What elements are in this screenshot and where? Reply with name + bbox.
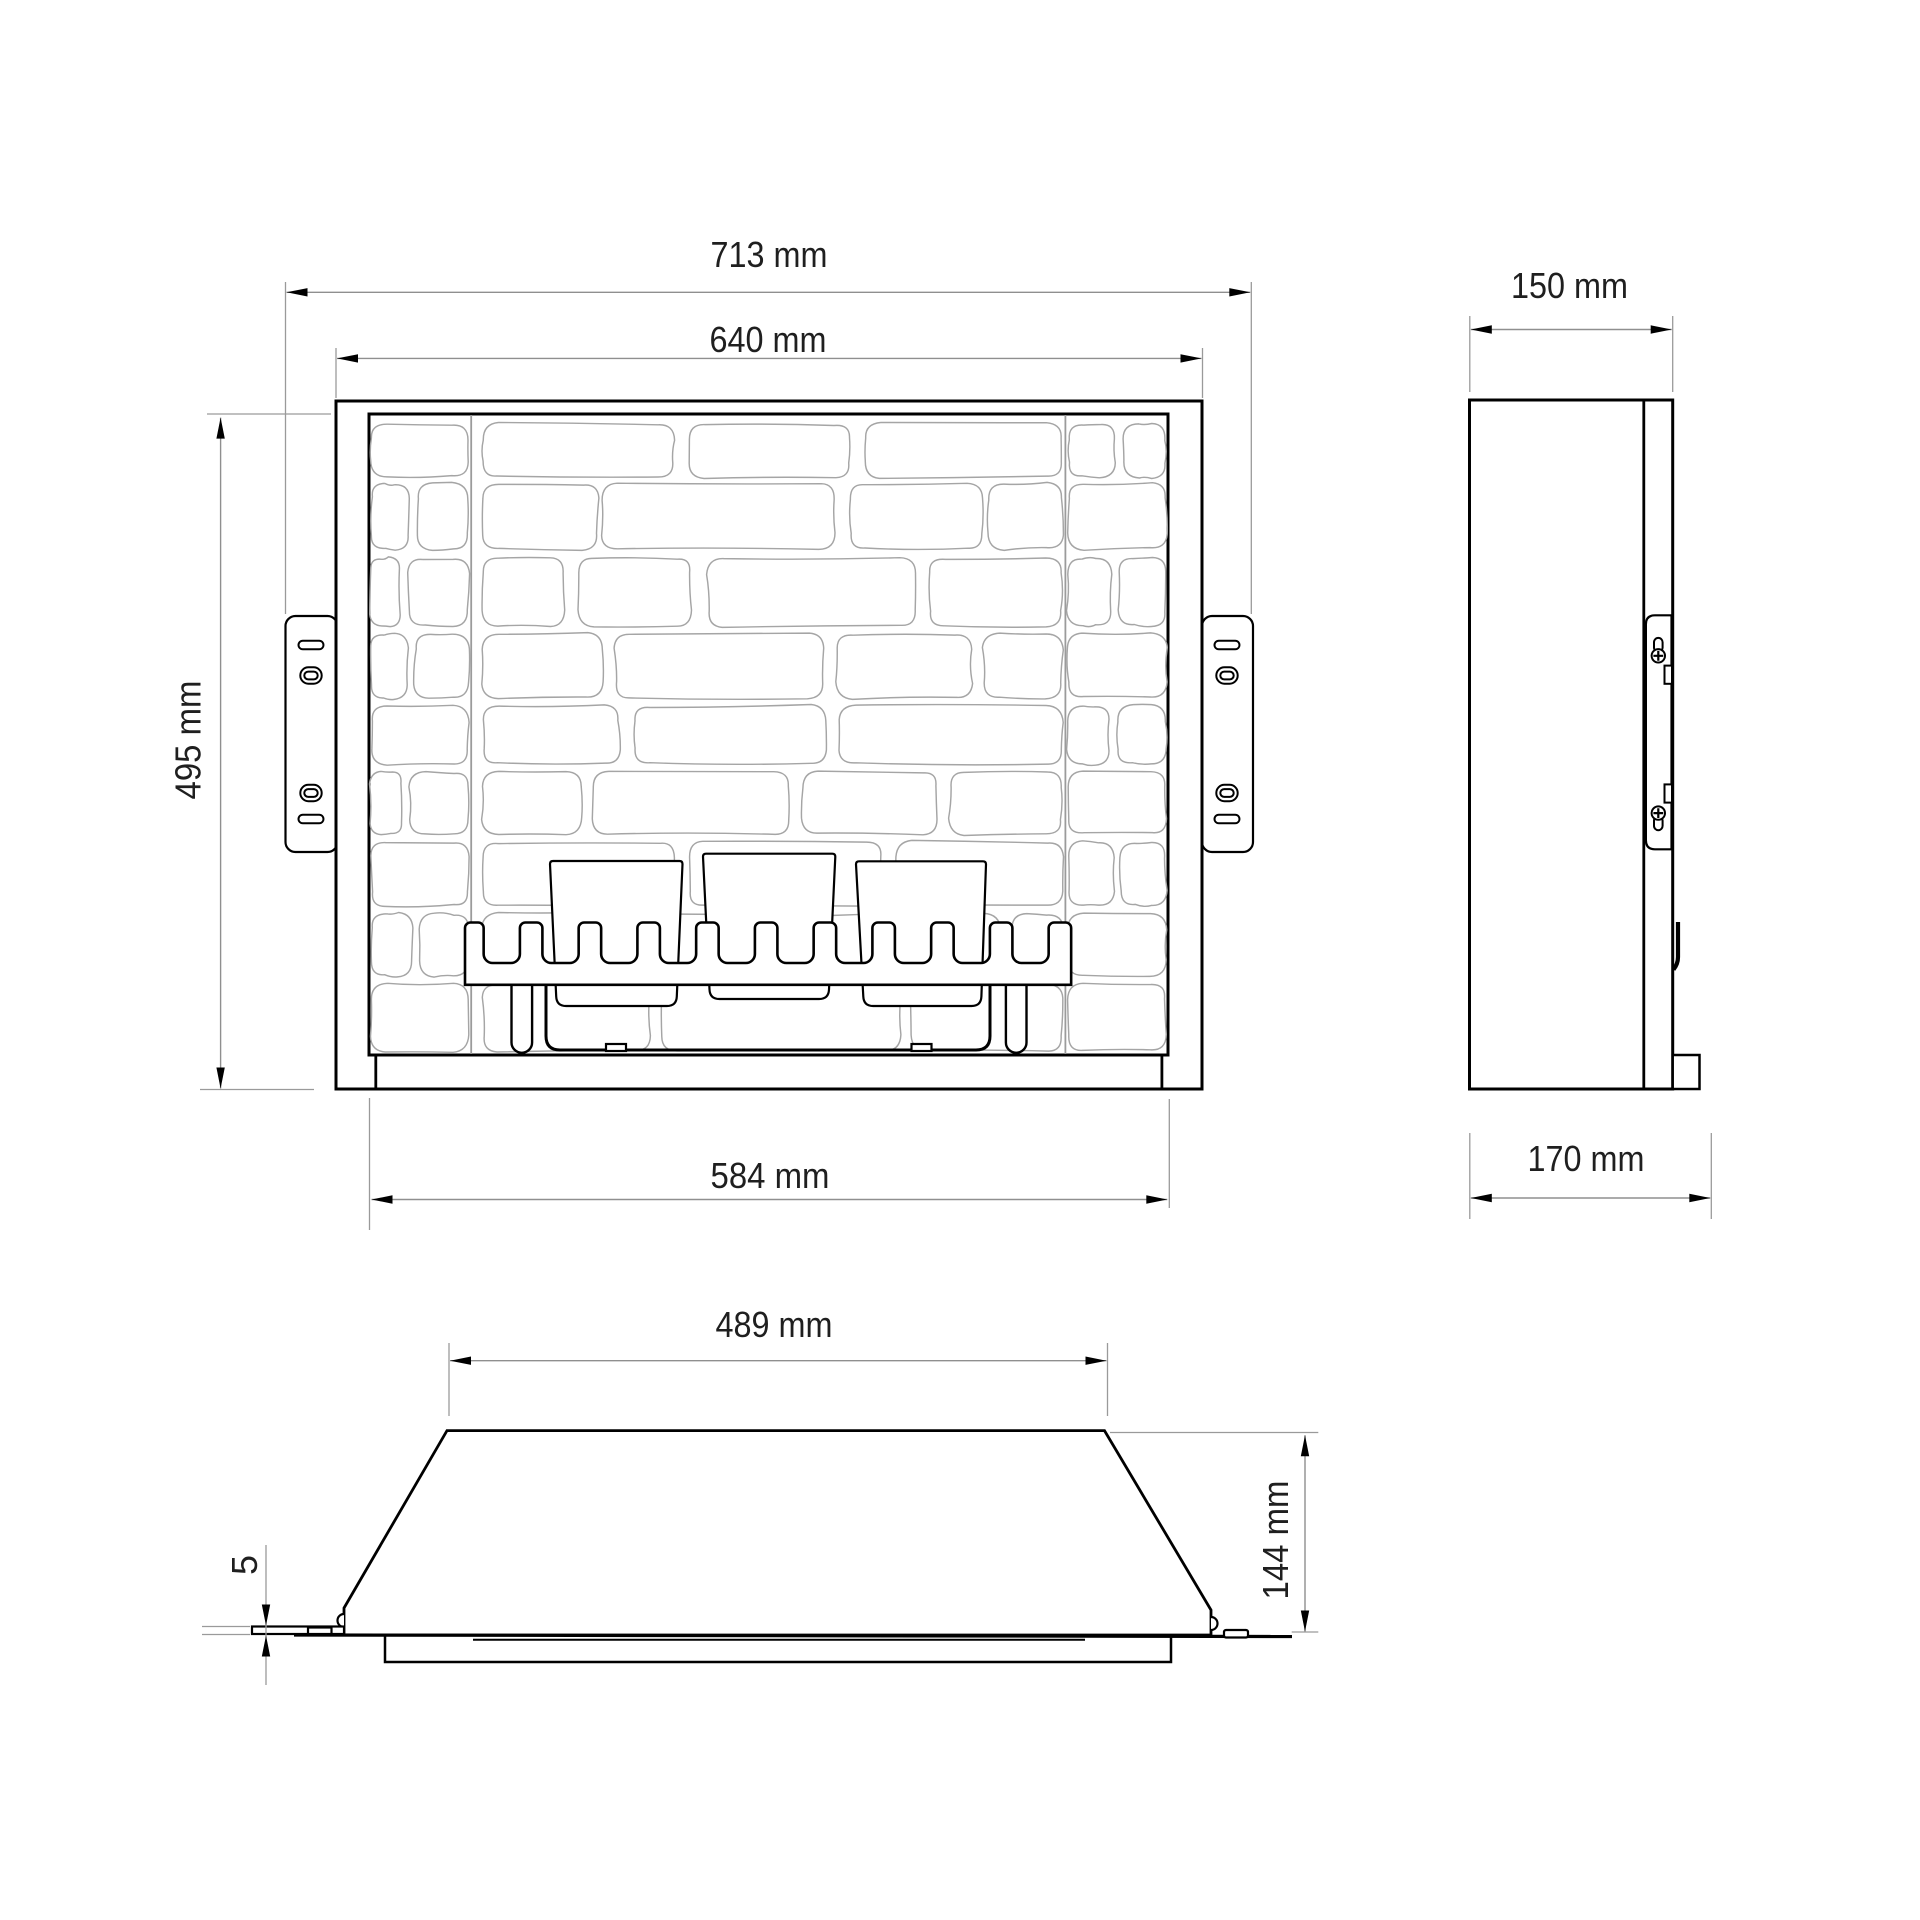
svg-text:495 mm: 495 mm (168, 681, 209, 800)
svg-text:713 mm: 713 mm (711, 234, 828, 275)
svg-text:489 mm: 489 mm (716, 1304, 833, 1345)
svg-text:144 mm: 144 mm (1255, 1481, 1296, 1600)
svg-text:640 mm: 640 mm (710, 319, 827, 360)
svg-text:584 mm: 584 mm (711, 1155, 830, 1196)
svg-text:5: 5 (224, 1555, 265, 1575)
svg-text:170 mm: 170 mm (1528, 1138, 1645, 1179)
svg-text:150 mm: 150 mm (1511, 265, 1628, 306)
